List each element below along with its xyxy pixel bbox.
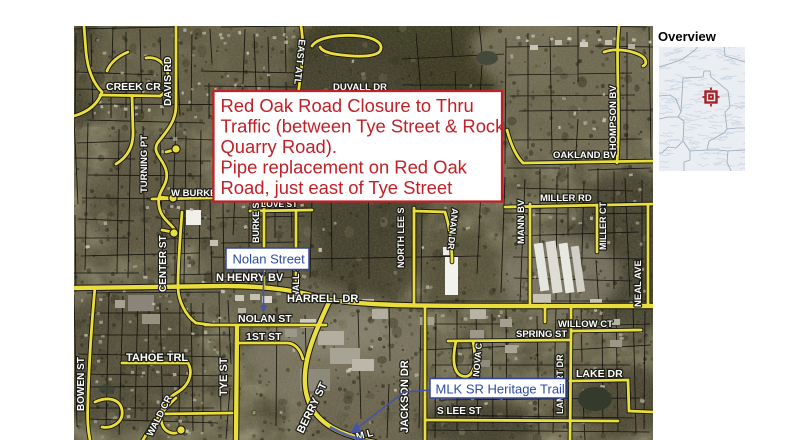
svg-text:TAHOE TRL: TAHOE TRL	[126, 352, 188, 364]
svg-text:Quarry Road).: Quarry Road).	[221, 136, 338, 157]
svg-text:CENTER ST: CENTER ST	[158, 235, 169, 292]
svg-text:MILLER CT: MILLER CT	[598, 202, 608, 250]
svg-text:NOLAN ST: NOLAN ST	[238, 313, 292, 325]
svg-text:Pipe replacement on Red Oak: Pipe replacement on Red Oak	[221, 157, 468, 178]
svg-text:TURNING PT: TURNING PT	[139, 135, 150, 193]
svg-text:NEAL AVE: NEAL AVE	[633, 260, 644, 307]
svg-text:MLK SR Heritage Trail: MLK SR Heritage Trail	[436, 382, 565, 397]
svg-text:SPRING ST: SPRING ST	[516, 329, 567, 340]
svg-text:S LEE ST: S LEE ST	[437, 406, 481, 417]
svg-text:Red Oak Road Closure to Thru: Red Oak Road Closure to Thru	[221, 95, 474, 116]
svg-text:BOWEN ST: BOWEN ST	[76, 357, 87, 411]
svg-text:N HENRY BV: N HENRY BV	[216, 272, 284, 284]
svg-text:BURKE S: BURKE S	[251, 202, 261, 243]
svg-text:MILLER RD: MILLER RD	[540, 193, 592, 204]
svg-text:JACKSON DR: JACKSON DR	[399, 360, 411, 433]
svg-text:Overview: Overview	[658, 29, 717, 44]
svg-text:OAKLAND BV: OAKLAND BV	[553, 150, 617, 161]
svg-text:CREEK CR: CREEK CR	[106, 81, 161, 93]
svg-text:MANN BV: MANN BV	[516, 199, 527, 244]
svg-text:WILLOW CT: WILLOW CT	[558, 319, 613, 330]
svg-text:Traffic (between Tye Street &: Traffic (between Tye Street & Rock	[221, 116, 506, 137]
svg-text:Road, just east of Tye Street: Road, just east of Tye Street	[221, 177, 453, 198]
svg-text:LAKE DR: LAKE DR	[576, 368, 623, 380]
svg-text:NORTH LEE S: NORTH LEE S	[396, 207, 406, 268]
svg-text:Nolan Street: Nolan Street	[233, 252, 306, 267]
svg-text:THOMPSON BV: THOMPSON BV	[608, 85, 619, 156]
svg-text:TYE ST: TYE ST	[218, 357, 230, 396]
svg-text:1ST ST: 1ST ST	[246, 331, 282, 343]
svg-text:DAVIS RD: DAVIS RD	[162, 56, 174, 106]
svg-text:HARRELL DR: HARRELL DR	[287, 293, 358, 305]
